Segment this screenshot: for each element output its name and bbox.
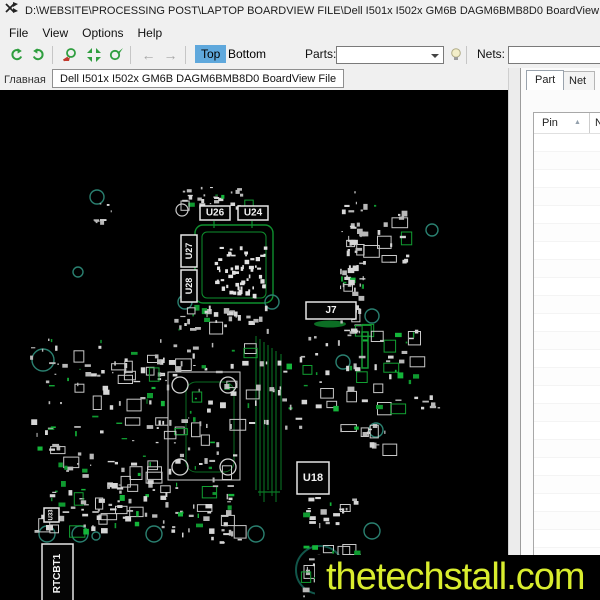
rotate-left-icon[interactable] bbox=[7, 45, 26, 64]
home-tab-label: Главная bbox=[4, 74, 46, 86]
svg-text:U27: U27 bbox=[184, 243, 194, 260]
pin-table-header: Pin ▲ Net bbox=[534, 113, 600, 134]
svg-text:RTCBT1: RTCBT1 bbox=[52, 553, 63, 593]
bottom-button[interactable]: Bottom bbox=[222, 45, 272, 63]
table-row bbox=[534, 440, 600, 458]
rotate-right-icon[interactable] bbox=[28, 45, 47, 64]
svg-text:U26: U26 bbox=[206, 208, 225, 219]
table-row bbox=[534, 296, 600, 314]
svg-text:U18: U18 bbox=[303, 472, 323, 484]
table-row bbox=[534, 422, 600, 440]
column-header-pin[interactable]: Pin bbox=[542, 117, 558, 129]
table-row bbox=[534, 350, 600, 368]
board-canvas[interactable]: U26U24U27U28J7U18RTCBT1U33 bbox=[0, 90, 508, 600]
table-row bbox=[534, 494, 600, 512]
fit-to-screen-icon[interactable] bbox=[84, 45, 103, 64]
board-component[interactable]: U33 bbox=[44, 508, 59, 522]
table-row bbox=[534, 134, 600, 152]
table-row bbox=[534, 476, 600, 494]
toolbar-separator bbox=[130, 46, 131, 64]
board-component[interactable]: U26 bbox=[200, 206, 230, 220]
table-row bbox=[534, 368, 600, 386]
column-divider bbox=[589, 113, 590, 133]
menu-bar: File View Options Help bbox=[0, 22, 600, 43]
menu-options[interactable]: Options bbox=[82, 24, 123, 42]
window-title: D:\WEBSITE\PROCESSING POST\LAPTOP BOARDV… bbox=[25, 5, 600, 17]
board-component[interactable]: U28 bbox=[181, 270, 197, 302]
table-row bbox=[534, 206, 600, 224]
bulb-icon[interactable] bbox=[446, 45, 465, 64]
watermark-band: thetechstall.com bbox=[315, 555, 600, 600]
table-row bbox=[534, 278, 600, 296]
svg-text:U24: U24 bbox=[244, 208, 263, 219]
parts-label: Parts: bbox=[305, 47, 336, 61]
board-component[interactable]: U24 bbox=[238, 206, 268, 220]
pin-table-body bbox=[534, 134, 600, 574]
svg-text:U28: U28 bbox=[184, 278, 194, 295]
board-component[interactable]: J7 bbox=[306, 302, 356, 319]
table-row bbox=[534, 152, 600, 170]
toolbar: ← → Top Bottom Parts: Nets: bbox=[0, 43, 600, 68]
zoom-area-icon[interactable] bbox=[106, 45, 125, 64]
table-row bbox=[534, 260, 600, 278]
table-row bbox=[534, 332, 600, 350]
side-panel: Part Net Pin ▲ Net bbox=[521, 68, 600, 600]
boardview-window: D:\WEBSITE\PROCESSING POST\LAPTOP BOARDV… bbox=[0, 0, 600, 600]
board-component[interactable]: RTCBT1 bbox=[42, 544, 73, 600]
table-row bbox=[534, 242, 600, 260]
table-row bbox=[534, 404, 600, 422]
panel-splitter[interactable] bbox=[508, 68, 521, 600]
svg-text:J7: J7 bbox=[325, 305, 337, 316]
board-component[interactable]: U18 bbox=[297, 462, 329, 494]
title-bar: D:\WEBSITE\PROCESSING POST\LAPTOP BOARDV… bbox=[0, 0, 600, 22]
table-row bbox=[534, 512, 600, 530]
parts-combobox[interactable] bbox=[336, 46, 444, 64]
watermark-text: thetechstall.com bbox=[315, 556, 585, 599]
toolbar-separator bbox=[52, 46, 53, 64]
toolbar-separator bbox=[185, 46, 186, 64]
table-row bbox=[534, 170, 600, 188]
table-row bbox=[534, 314, 600, 332]
zoom-out-icon[interactable] bbox=[60, 45, 79, 64]
pin-table: Pin ▲ Net bbox=[533, 112, 600, 574]
board-component[interactable]: U27 bbox=[181, 235, 197, 267]
shuffle-arrows-icon bbox=[5, 2, 19, 20]
table-row bbox=[534, 224, 600, 242]
table-row bbox=[534, 188, 600, 206]
column-header-net[interactable]: Net bbox=[595, 117, 600, 129]
table-row bbox=[534, 458, 600, 476]
tab-part[interactable]: Part bbox=[526, 70, 564, 90]
back-icon[interactable]: ← bbox=[139, 45, 158, 64]
menu-help[interactable]: Help bbox=[138, 24, 163, 42]
document-tab[interactable]: Dell I501x I502x GM6B DAGM6BMB8D0 BoardV… bbox=[52, 69, 344, 88]
menu-view[interactable]: View bbox=[42, 24, 68, 42]
nets-input[interactable] bbox=[508, 46, 600, 64]
forward-icon[interactable]: → bbox=[161, 45, 180, 64]
nets-label: Nets: bbox=[477, 47, 505, 61]
sort-ascending-icon: ▲ bbox=[574, 119, 581, 126]
toolbar-separator bbox=[466, 46, 467, 64]
svg-text:U33: U33 bbox=[49, 509, 55, 521]
menu-file[interactable]: File bbox=[9, 24, 28, 42]
dropdown-chevron-icon bbox=[431, 54, 439, 58]
table-row bbox=[534, 530, 600, 548]
table-row bbox=[534, 386, 600, 404]
tab-net[interactable]: Net bbox=[560, 71, 595, 90]
